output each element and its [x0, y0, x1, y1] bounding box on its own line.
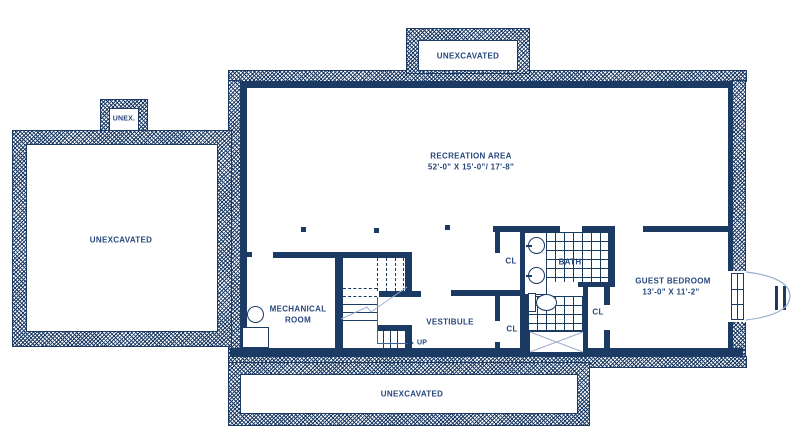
window-well-ladder-icon	[775, 286, 786, 310]
sink-faucet-icon	[526, 275, 532, 277]
water-heater-icon	[247, 306, 264, 323]
support-post-icon	[445, 225, 450, 230]
toilet-icon	[536, 294, 557, 311]
window-icon	[737, 273, 738, 320]
mechanical-room-top-wall-stub	[240, 252, 252, 257]
support-post-icon	[374, 228, 379, 233]
stair-winder-tread	[343, 304, 377, 305]
stair-direction-line	[377, 343, 408, 344]
vestibule-top-wall	[451, 290, 520, 296]
closet-bottom-label: CL	[506, 325, 517, 334]
stair-right-upper-wall	[405, 252, 412, 293]
main-bottom-wall	[230, 348, 743, 356]
stair-upper-tread	[386, 258, 387, 291]
stair-lower-tread	[383, 331, 384, 348]
shower-icon	[528, 330, 585, 354]
unex-bump-label: UNEX.	[113, 115, 135, 124]
guest-closet-stub-bottom	[604, 330, 610, 348]
stair-upper-tread	[377, 258, 378, 291]
stair-winder-tread	[343, 296, 377, 297]
guest-closet-stub-top	[604, 287, 610, 305]
window-icon	[731, 304, 744, 305]
guest-bedroom-label: GUEST BEDROOM	[635, 277, 710, 286]
sink-faucet-icon	[526, 245, 532, 247]
recreation-area-dimensions: 52'-0" X 15'-0"/ 17'-8"	[428, 163, 514, 172]
closet-guest-label: CL	[592, 308, 603, 317]
main-top-wall	[230, 82, 743, 88]
stair-up-arrow-icon	[408, 340, 414, 346]
stair-winder-tread	[343, 288, 377, 289]
furnace-icon	[242, 327, 269, 348]
stair-landing-wall	[379, 291, 421, 297]
mechanical-room-label: MECHANICAL	[270, 305, 327, 314]
recreation-area-label: RECREATION AREA	[430, 152, 511, 161]
stair-winder-tread	[343, 312, 377, 313]
closet-column-wall-upper	[495, 230, 500, 253]
guest-bedroom-top-wall	[643, 226, 733, 232]
mechanical-room-label: ROOM	[285, 316, 311, 325]
bath-right-wall	[608, 230, 615, 282]
toilet-tank-icon	[528, 293, 536, 312]
closet-top-label: CL	[505, 257, 516, 266]
vestibule-label: VESTIBULE	[426, 318, 474, 327]
unexcavated-top-label: UNEXCAVATED	[437, 52, 499, 61]
unexcavated-bottom-label: UNEXCAVATED	[381, 390, 443, 399]
window-icon	[731, 289, 744, 290]
stair-winder-tread	[343, 320, 377, 321]
stair-left-wall	[335, 252, 343, 348]
stair-direction-line	[377, 297, 378, 343]
stair-upper-tread	[395, 258, 396, 291]
closet-column-wall-lower	[495, 342, 500, 352]
guest-bedroom-dimensions: 13'-0" X 11'-2"	[642, 288, 699, 297]
unexcavated-left-label: UNEXCAVATED	[90, 236, 152, 245]
stair-upper-tread	[403, 258, 404, 291]
stair-lower-tread	[390, 331, 391, 348]
support-post-icon	[301, 227, 306, 232]
floor-plan: UNEXCAVATED UNEX. UNEXCAVATED UNEXCAVATE…	[0, 0, 802, 443]
bath-label: BATH	[559, 258, 582, 267]
stair-up-label: UP	[417, 339, 427, 348]
closet-column-wall-middle	[495, 296, 500, 321]
stair-lower-tread	[397, 331, 398, 348]
main-left-wall	[240, 88, 247, 348]
